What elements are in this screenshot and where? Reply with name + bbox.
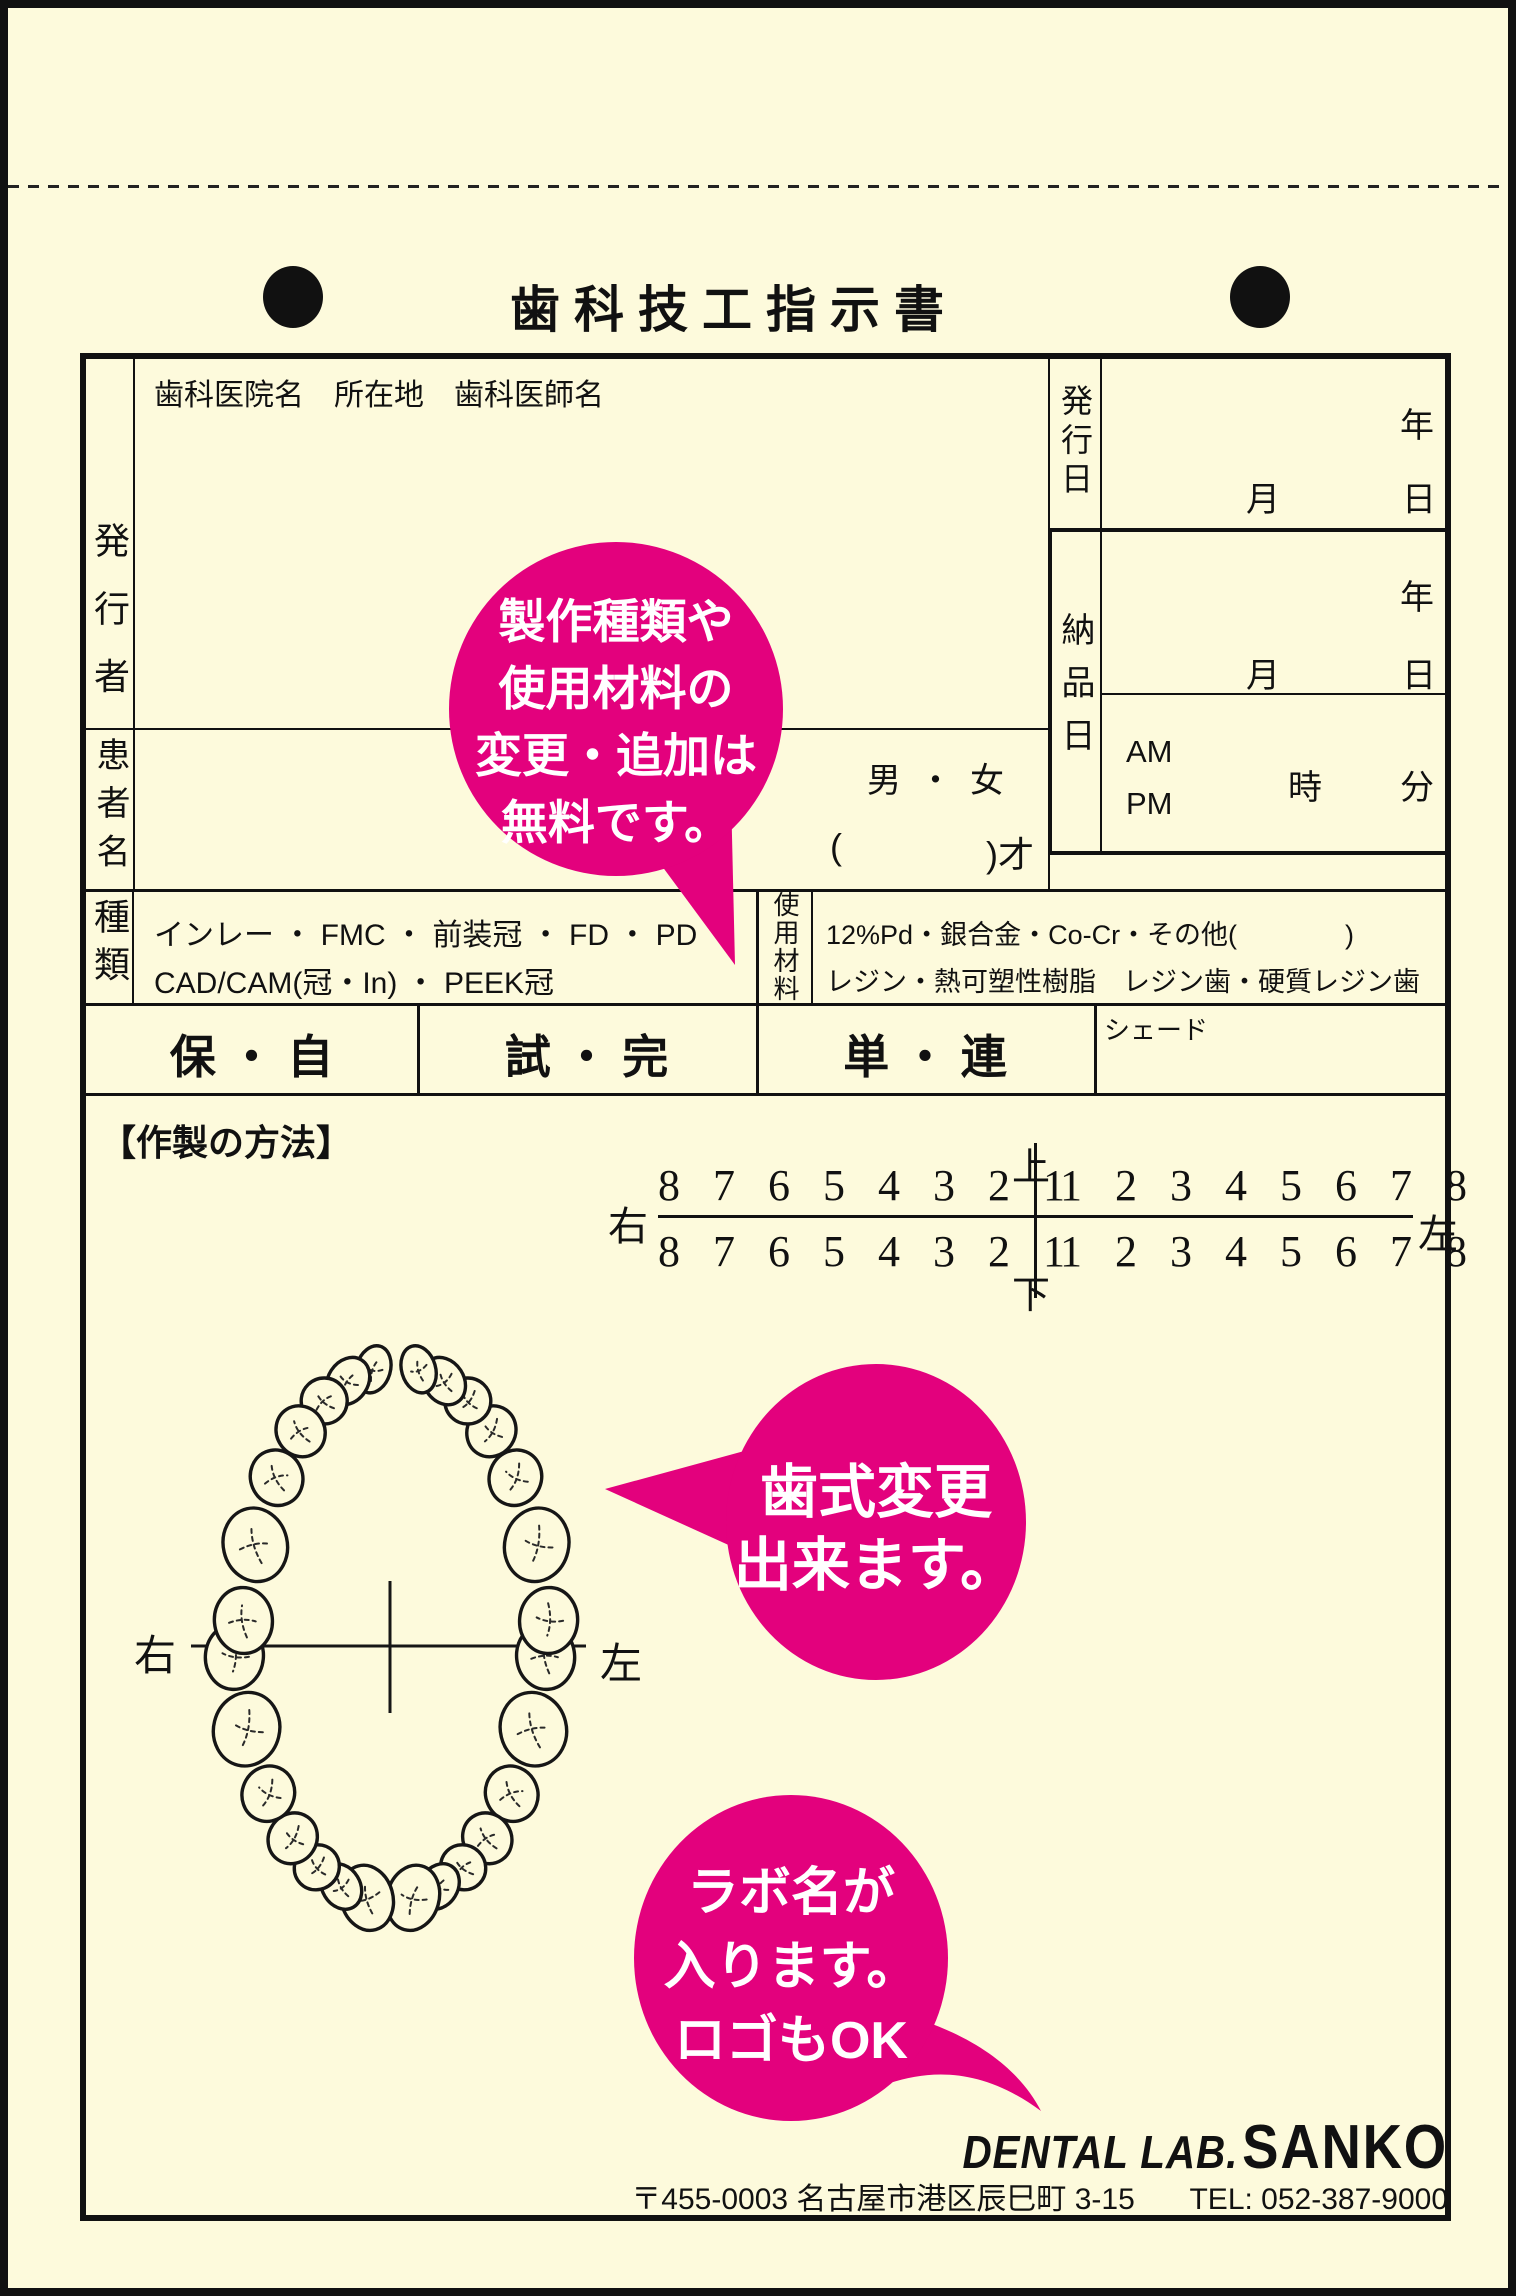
grid-line: [86, 728, 1048, 730]
grid-line: [86, 889, 1445, 892]
page-title: 歯科技工指示書: [308, 270, 1160, 342]
grid-line: [811, 889, 813, 1003]
grid-line: [132, 889, 134, 1003]
grid-line: [417, 1003, 420, 1093]
grid-line: [86, 1093, 1445, 1096]
grid-line: [1100, 359, 1102, 528]
delivery-date-box-border: [1048, 528, 1451, 855]
grid-line: [86, 1003, 1445, 1006]
perforation-dashed-line: [8, 185, 1508, 188]
punch-hole-icon: [1230, 266, 1290, 328]
dental-lab-order-form-page: 歯科技工指示書: [0, 0, 1516, 2296]
grid-line: [133, 359, 135, 891]
grid-line: [756, 889, 759, 1093]
grid-line: [1094, 1003, 1097, 1093]
